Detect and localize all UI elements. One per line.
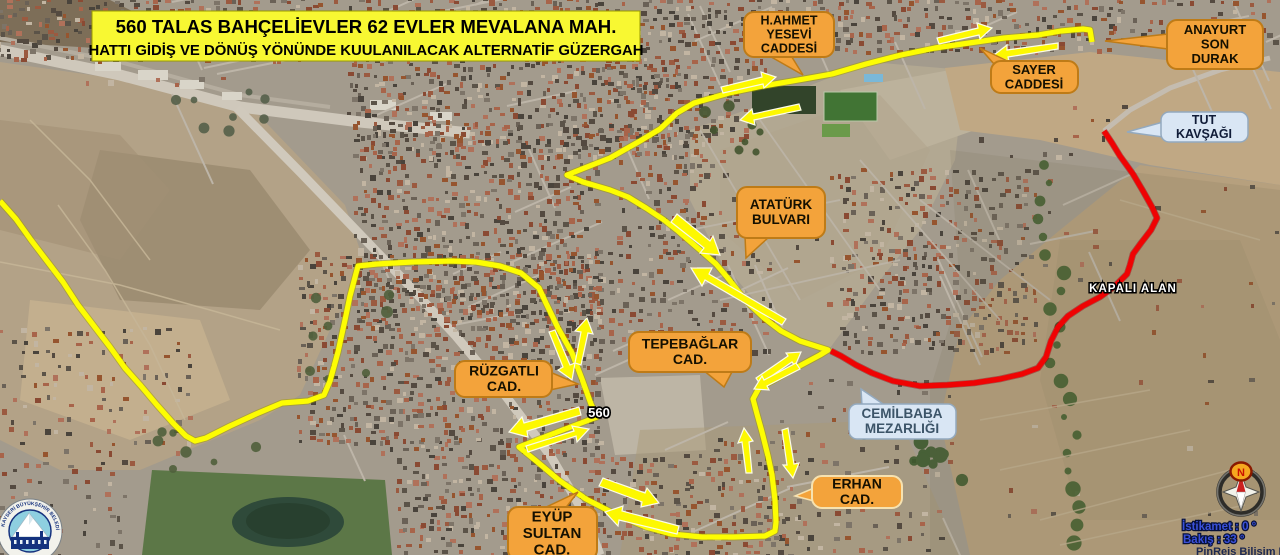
svg-text:PinReis Bilişim L: PinReis Bilişim L (1196, 546, 1280, 555)
svg-text:ERHAN: ERHAN (832, 476, 882, 492)
svg-text:EYÜP: EYÜP (532, 509, 573, 526)
svg-text:ATATÜRK: ATATÜRK (750, 197, 812, 212)
svg-text:560 TALAS BAHÇELİEVLER 62 EVLE: 560 TALAS BAHÇELİEVLER 62 EVLER MEVALANA… (116, 16, 617, 37)
svg-text:TEPEBAĞLAR: TEPEBAĞLAR (642, 335, 738, 352)
svg-text:İstikamet : 0 °: İstikamet : 0 ° (1182, 520, 1257, 533)
svg-text:SON: SON (1201, 37, 1229, 52)
svg-text:560: 560 (588, 405, 610, 420)
svg-text:CAD.: CAD. (534, 542, 571, 555)
svg-text:CAD.: CAD. (673, 351, 707, 367)
svg-text:KAVŞAĞI: KAVŞAĞI (1176, 126, 1232, 141)
svg-text:CADDESİ: CADDESİ (1005, 76, 1064, 91)
svg-text:HATTI GİDİŞ VE DÖNÜŞ YÖNÜNDE K: HATTI GİDİŞ VE DÖNÜŞ YÖNÜNDE KUULANILACA… (88, 42, 643, 59)
svg-text:BULVARI: BULVARI (752, 212, 810, 227)
svg-text:CAD.: CAD. (487, 378, 521, 394)
svg-text:N: N (1237, 467, 1245, 479)
svg-text:DURAK: DURAK (1192, 51, 1240, 66)
svg-text:H.AHMET: H.AHMET (761, 13, 818, 27)
svg-text:MEZARLIĞI: MEZARLIĞI (865, 421, 939, 436)
svg-text:SAYER: SAYER (1012, 62, 1056, 77)
svg-text:CEMİLBABA: CEMİLBABA (862, 406, 943, 421)
svg-text:KAPALI ALAN: KAPALI ALAN (1089, 283, 1177, 295)
svg-text:SULTAN: SULTAN (523, 525, 582, 542)
svg-text:Bakış : 33 °: Bakış : 33 ° (1183, 534, 1245, 546)
svg-text:YESEVİ: YESEVİ (766, 26, 811, 41)
svg-text:TUT: TUT (1192, 113, 1217, 127)
svg-text:CAD.: CAD. (840, 491, 874, 507)
svg-text:CADDESİ: CADDESİ (761, 40, 817, 55)
svg-text:RÜZGATLI: RÜZGATLI (469, 363, 539, 379)
svg-text:ANAYURT: ANAYURT (1184, 22, 1246, 37)
